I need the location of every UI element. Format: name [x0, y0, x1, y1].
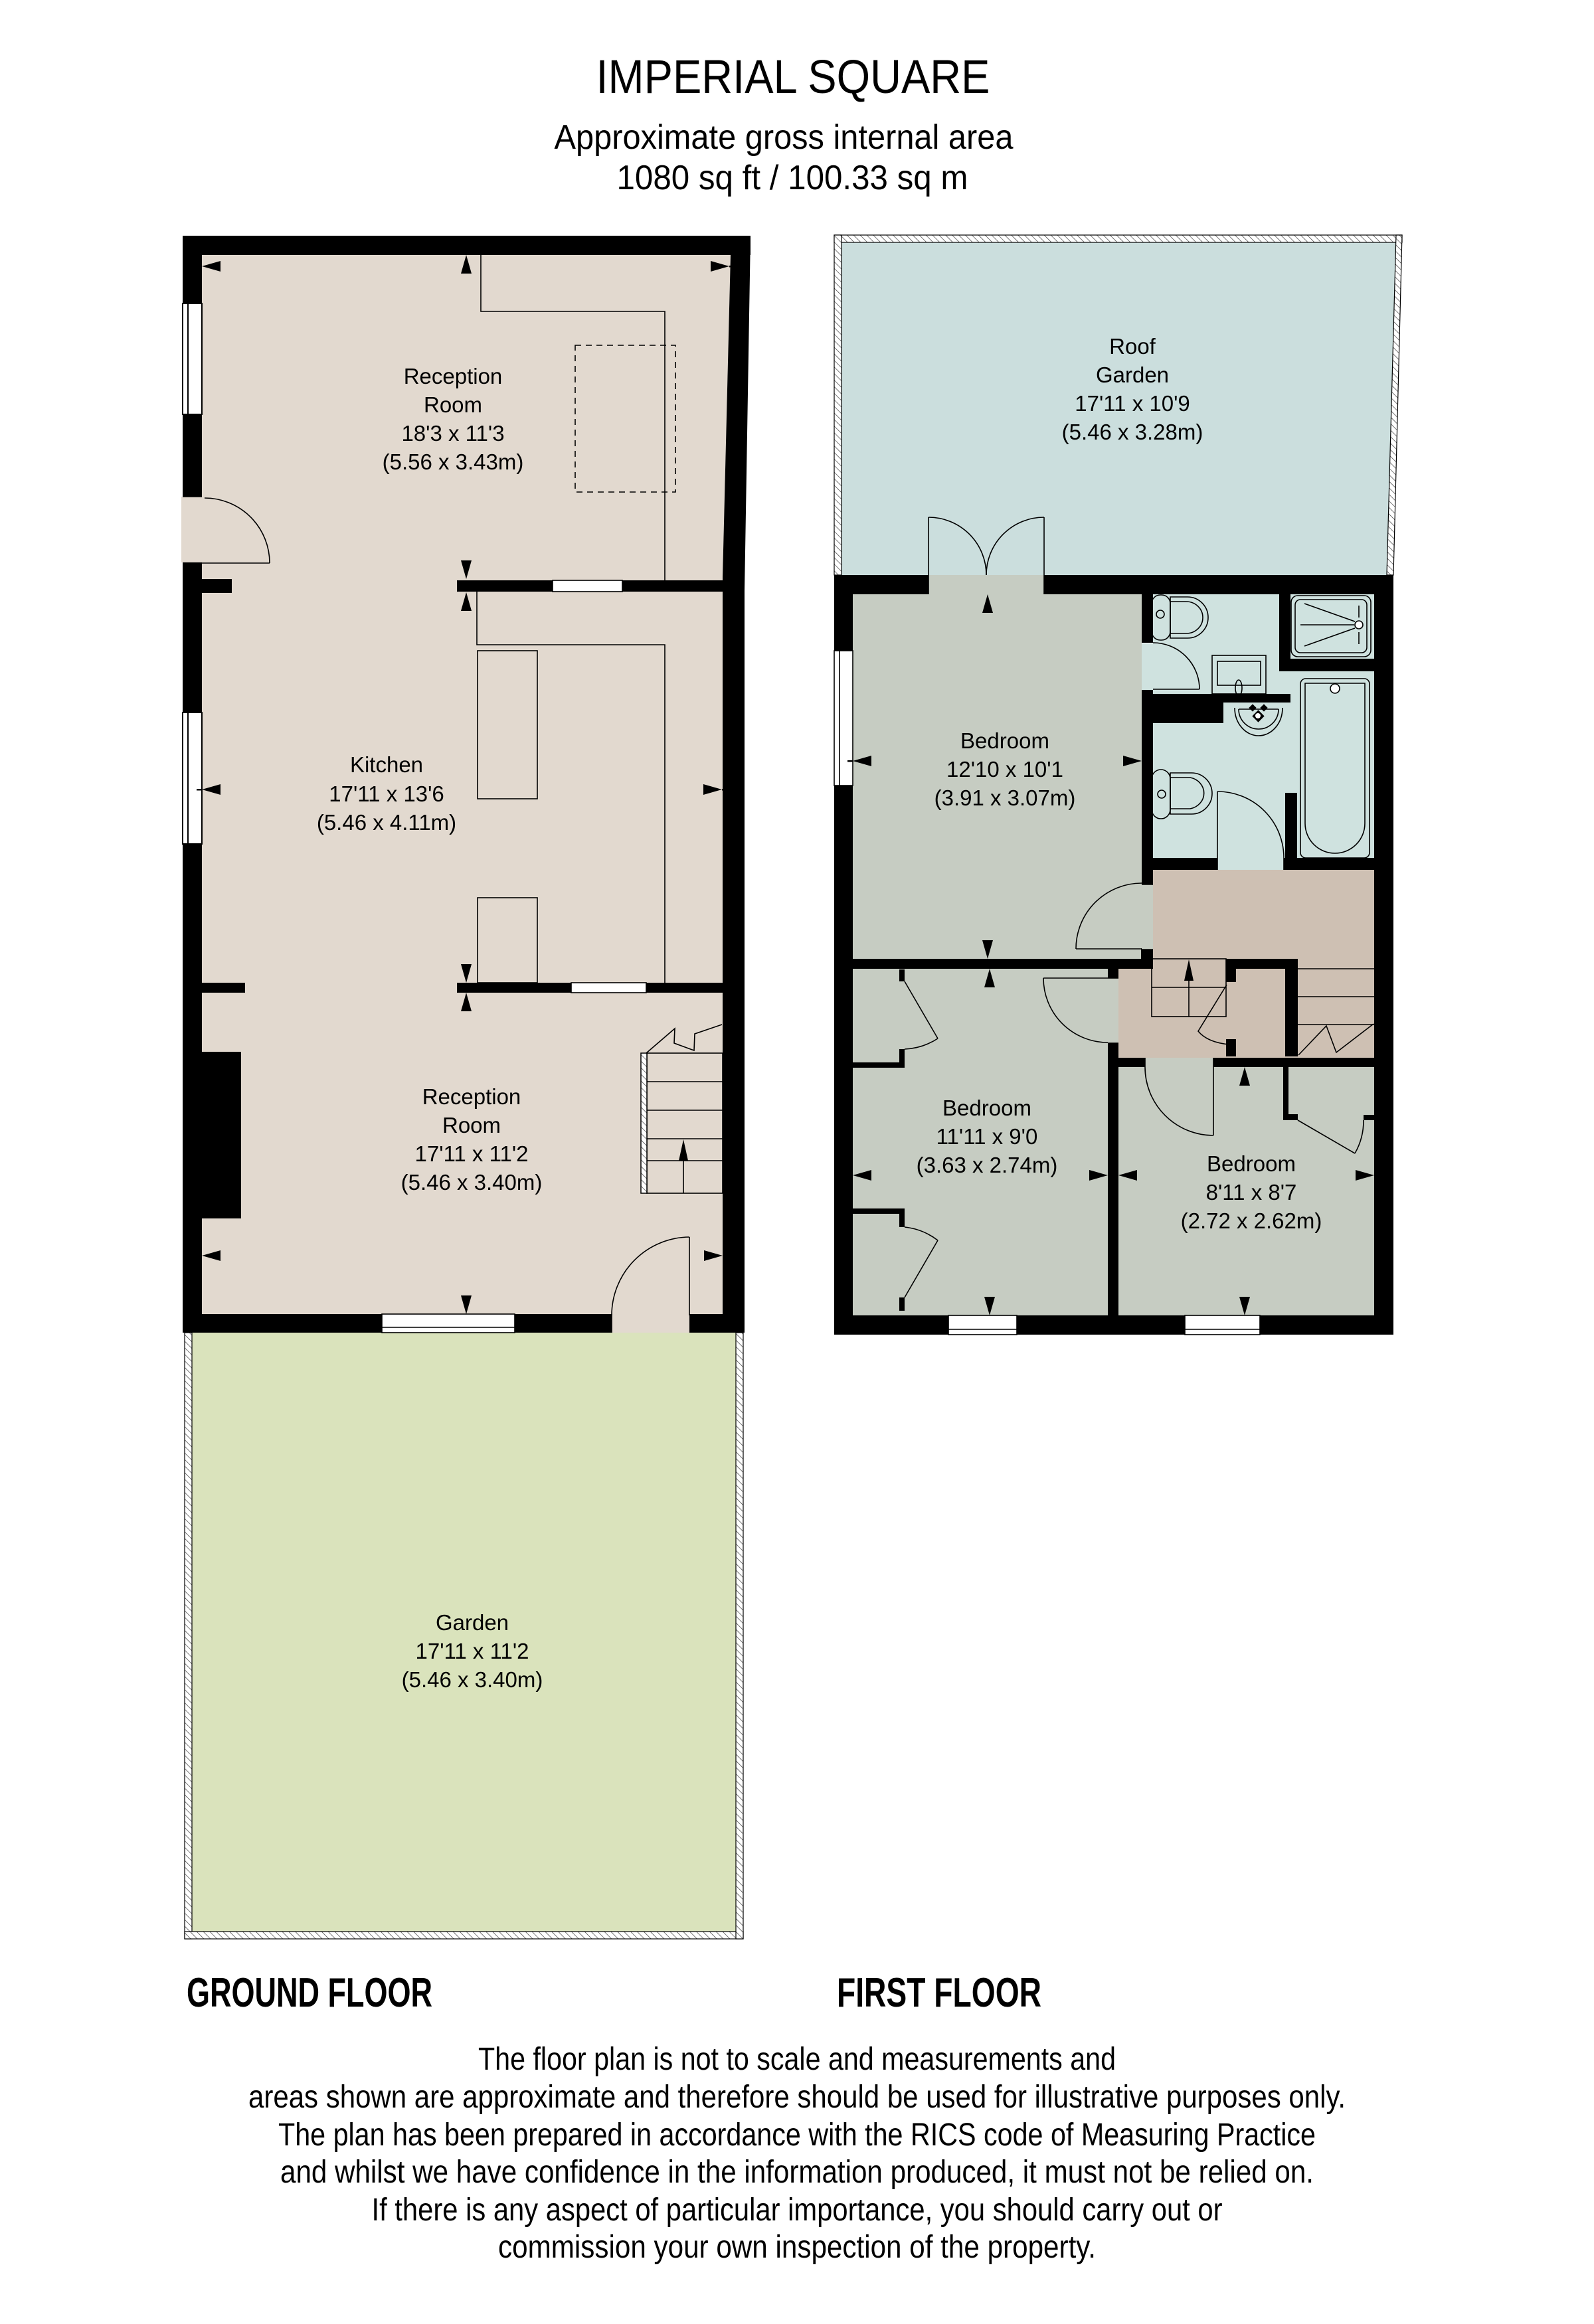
svg-text:11'11 x 9'0: 11'11 x 9'0 — [936, 1124, 1038, 1149]
svg-text:FIRST FLOOR: FIRST FLOOR — [837, 1970, 1041, 2016]
svg-text:Bedroom: Bedroom — [1207, 1151, 1296, 1176]
svg-text:If there is any aspect of part: If there is any aspect of particular imp… — [372, 2193, 1223, 2228]
svg-text:(3.91 x 3.07m): (3.91 x 3.07m) — [934, 786, 1076, 810]
svg-text:17'11 x 13'6: 17'11 x 13'6 — [329, 782, 444, 806]
svg-text:Approximate gross internal are: Approximate gross internal area — [555, 118, 1014, 157]
svg-text:12'10 x 10'1: 12'10 x 10'1 — [946, 757, 1063, 782]
svg-text:Bedroom: Bedroom — [942, 1096, 1031, 1120]
svg-text:1080 sq ft / 100.33 sq m: 1080 sq ft / 100.33 sq m — [617, 159, 968, 197]
svg-text:17'11 x 11'2: 17'11 x 11'2 — [414, 1141, 528, 1166]
svg-text:Bedroom: Bedroom — [960, 728, 1049, 753]
svg-text:Room: Room — [442, 1113, 501, 1137]
svg-text:and whilst we have confidence: and whilst we have confidence in the inf… — [280, 2155, 1314, 2190]
svg-text:(3.63 x 2.74m): (3.63 x 2.74m) — [917, 1153, 1058, 1177]
svg-text:The floor plan is not to scale: The floor plan is not to scale and measu… — [478, 2042, 1116, 2077]
svg-text:Reception: Reception — [422, 1084, 521, 1109]
svg-text:18'3 x 11'3: 18'3 x 11'3 — [401, 421, 504, 446]
svg-text:17'11 x 11'2: 17'11 x 11'2 — [415, 1639, 529, 1663]
svg-text:Kitchen: Kitchen — [350, 752, 423, 777]
svg-text:8'11 x 8'7: 8'11 x 8'7 — [1206, 1180, 1297, 1204]
svg-text:(5.56 x 3.43m): (5.56 x 3.43m) — [383, 450, 524, 474]
svg-text:17'11 x 10'9: 17'11 x 10'9 — [1075, 391, 1190, 416]
svg-text:The plan has been prepared in: The plan has been prepared in accordance… — [278, 2117, 1316, 2153]
svg-text:Room: Room — [424, 392, 482, 417]
svg-text:commission your own inspection: commission your own inspection of the pr… — [498, 2230, 1096, 2265]
svg-text:(5.46 x 3.28m): (5.46 x 3.28m) — [1062, 420, 1203, 444]
svg-text:(5.46 x 3.40m): (5.46 x 3.40m) — [402, 1667, 543, 1692]
svg-text:(5.46 x 4.11m): (5.46 x 4.11m) — [317, 810, 456, 835]
svg-text:(2.72 x 2.62m): (2.72 x 2.62m) — [1181, 1208, 1322, 1233]
svg-text:Reception: Reception — [404, 364, 503, 388]
svg-text:Garden: Garden — [436, 1610, 509, 1635]
svg-text:IMPERIAL SQUARE: IMPERIAL SQUARE — [596, 51, 990, 104]
svg-text:areas shown are approximate an: areas shown are approximate and therefor… — [248, 2080, 1346, 2115]
svg-text:(5.46 x 3.40m): (5.46 x 3.40m) — [401, 1170, 543, 1195]
svg-text:Garden: Garden — [1096, 363, 1169, 387]
svg-text:GROUND FLOOR: GROUND FLOOR — [187, 1970, 432, 2016]
svg-text:Roof: Roof — [1109, 334, 1156, 359]
